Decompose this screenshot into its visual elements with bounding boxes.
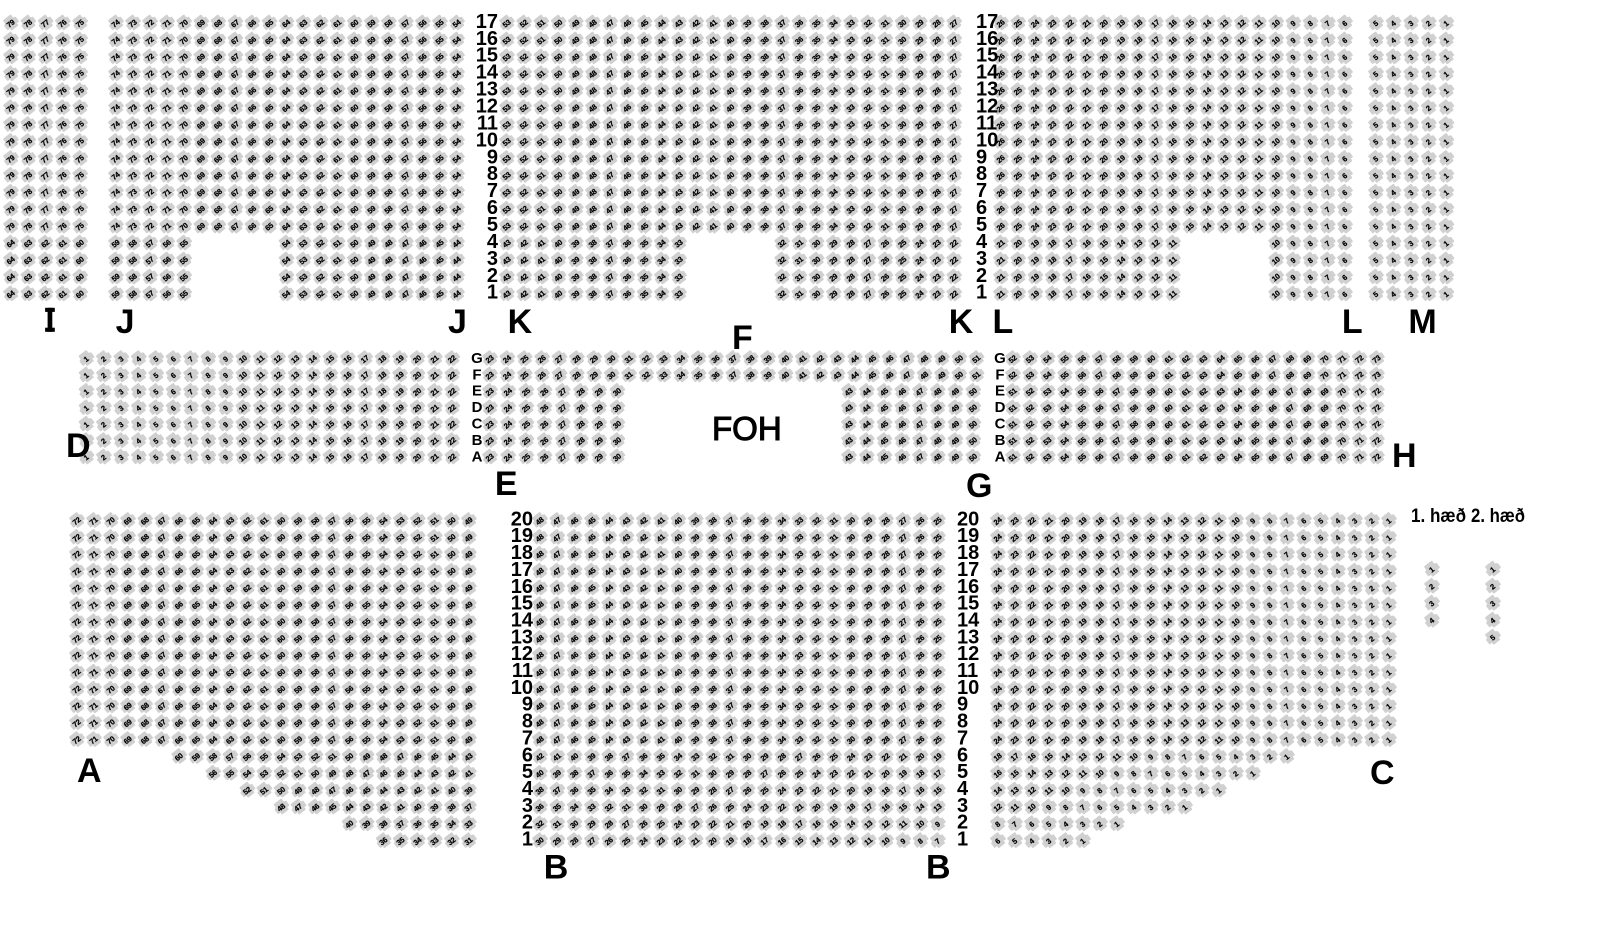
svg-text:20: 20 bbox=[957, 508, 979, 530]
svg-text:L: L bbox=[993, 303, 1014, 341]
svg-text:F: F bbox=[995, 366, 1004, 383]
svg-text:FOH: FOH bbox=[712, 410, 782, 447]
svg-text:17: 17 bbox=[976, 11, 998, 33]
svg-text:D: D bbox=[995, 399, 1006, 416]
svg-text:B: B bbox=[995, 432, 1006, 449]
svg-text:B: B bbox=[472, 432, 483, 449]
svg-text:L: L bbox=[1342, 303, 1363, 341]
svg-text:K: K bbox=[949, 303, 974, 341]
svg-text:1. hæð: 1. hæð bbox=[1411, 506, 1466, 527]
svg-text:C: C bbox=[1370, 754, 1395, 792]
svg-text:A: A bbox=[77, 752, 102, 790]
svg-text:C: C bbox=[472, 416, 483, 433]
svg-text:A: A bbox=[472, 448, 483, 465]
svg-text:E: E bbox=[995, 383, 1005, 400]
svg-text:F: F bbox=[732, 319, 753, 357]
svg-text:M: M bbox=[1408, 303, 1436, 341]
svg-text:J: J bbox=[448, 303, 467, 341]
svg-text:20: 20 bbox=[511, 508, 533, 530]
svg-text:G: G bbox=[966, 467, 992, 505]
svg-text:G: G bbox=[994, 350, 1006, 367]
svg-text:B: B bbox=[926, 849, 951, 887]
svg-text:C: C bbox=[995, 416, 1006, 433]
svg-text:E: E bbox=[495, 465, 518, 503]
svg-text:17: 17 bbox=[476, 11, 498, 33]
svg-text:K: K bbox=[508, 303, 533, 341]
svg-text:F: F bbox=[472, 366, 481, 383]
svg-text:E: E bbox=[472, 383, 482, 400]
svg-text:2. hæð: 2. hæð bbox=[1471, 506, 1525, 527]
svg-text:H: H bbox=[1392, 437, 1417, 475]
svg-text:D: D bbox=[66, 427, 91, 465]
svg-text:D: D bbox=[472, 399, 483, 416]
svg-text:G: G bbox=[471, 350, 483, 367]
svg-text:A: A bbox=[995, 448, 1006, 465]
svg-text:J: J bbox=[116, 303, 135, 341]
svg-text:B: B bbox=[544, 849, 569, 887]
